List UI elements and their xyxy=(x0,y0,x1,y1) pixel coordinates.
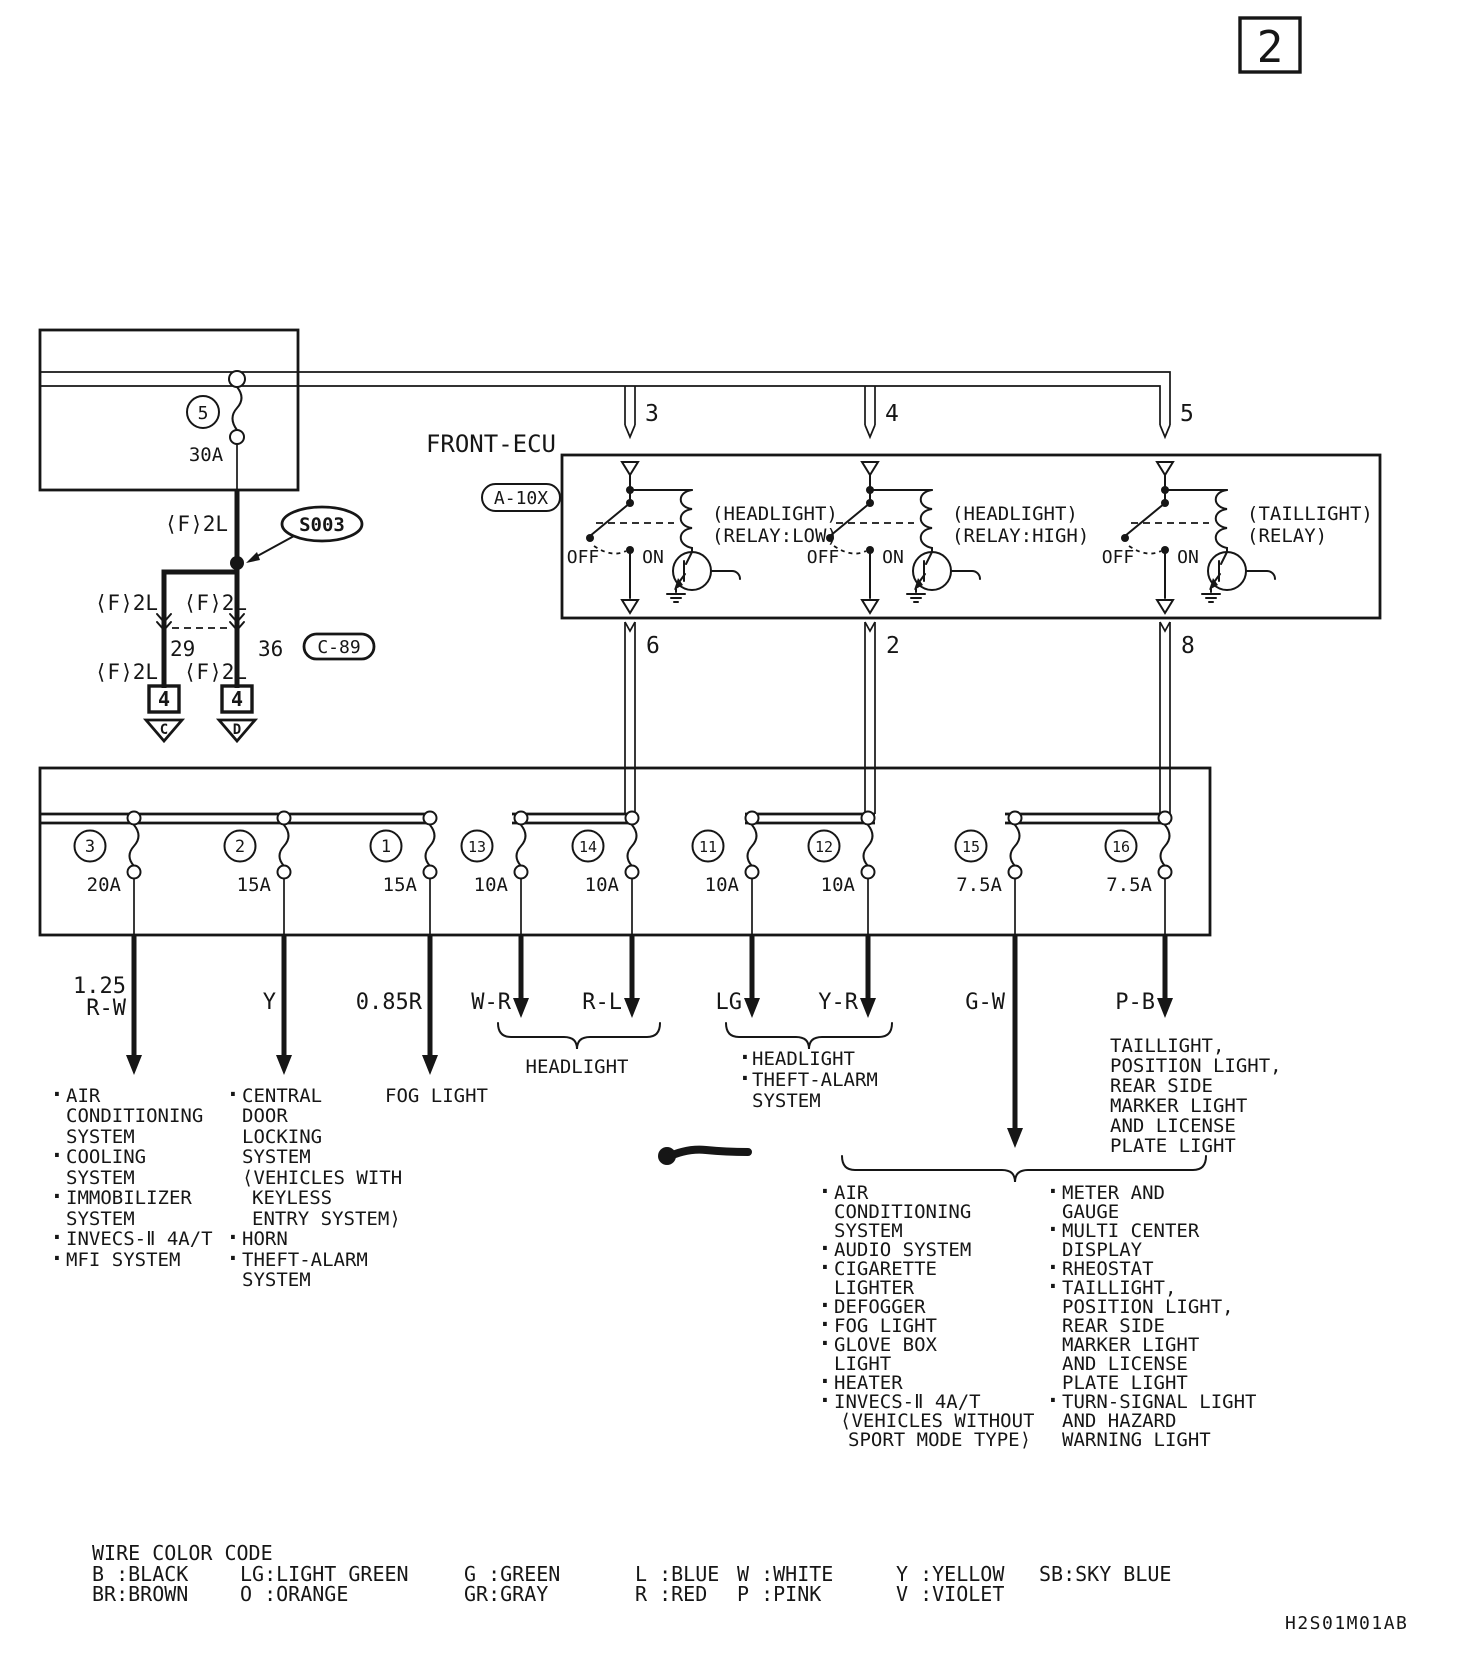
front-ecu: FRONT-ECU A-10X 3 4 5 OFF ON (HEADLIGHT)… xyxy=(426,401,1380,814)
relay-name-line1: (HEADLIGHT) xyxy=(712,503,838,525)
bullet: · xyxy=(50,1184,64,1210)
bullet: · xyxy=(818,1179,832,1205)
wire-code-rw: R-W xyxy=(86,996,126,1021)
dest-line: SYSTEM xyxy=(66,1126,135,1148)
relay-name-line2: (RELAY:HIGH) xyxy=(952,525,1089,547)
dest-line: MARKER LIGHT xyxy=(1110,1095,1247,1117)
fuse-14: 14 10A xyxy=(573,812,639,936)
dest-line: SYSTEM xyxy=(242,1269,311,1291)
bullet: · xyxy=(50,1143,64,1169)
dest-line: SYSTEM xyxy=(752,1090,821,1112)
dest-line: MFI SYSTEM xyxy=(66,1249,180,1271)
relay-headlight-high: OFF ON (HEADLIGHT) (RELAY:HIGH) xyxy=(807,503,1090,568)
ecu-pin-top-4: 4 xyxy=(885,401,899,427)
legend-item: R :RED xyxy=(635,1582,707,1606)
relay-name-line2: (RELAY) xyxy=(1247,525,1327,547)
bullet: · xyxy=(1046,1388,1060,1414)
bullet: · xyxy=(50,1246,64,1272)
relay-name-line1: (HEADLIGHT) xyxy=(952,503,1078,525)
dest-line: PLATE LIGHT xyxy=(1110,1135,1236,1157)
on-label: ON xyxy=(642,547,664,568)
dest-list-lg-yr: · HEADLIGHT · THEFT-ALARM SYSTEM xyxy=(738,1045,878,1112)
bullet: · xyxy=(818,1255,832,1281)
dest-headlight: HEADLIGHT xyxy=(526,1056,629,1078)
off-label: OFF xyxy=(807,547,840,568)
off-label: OFF xyxy=(1102,547,1135,568)
ecu-pin-bottom-8: 8 xyxy=(1181,633,1195,659)
feed-wires: ⟨F⟩2L S003 ⟨F⟩2L ⟨F⟩2L 29 36 C-89 ⟨F⟩2L … xyxy=(95,444,374,741)
fuse-12: 12 10A xyxy=(809,812,875,936)
fuse-1: 1 15A xyxy=(371,812,437,936)
bullet: · xyxy=(1046,1217,1060,1243)
legend-item: SB:SKY BLUE xyxy=(1039,1562,1171,1586)
dest-line: DOOR xyxy=(242,1105,288,1127)
terminal-right: 4 D xyxy=(219,686,255,741)
fuse-amp: 10A xyxy=(585,874,620,896)
dest-line: COOLING xyxy=(66,1146,146,1168)
wire-color-legend: WIRE COLOR CODE B :BLACK LG:LIGHT GREEN … xyxy=(92,1541,1171,1606)
terminal-number: 4 xyxy=(231,687,243,711)
dest-line: REAR SIDE xyxy=(1110,1075,1213,1097)
fuse-id: 15 xyxy=(962,838,980,856)
dest-line: AND LICENSE xyxy=(1110,1115,1236,1137)
splice-s003: S003 xyxy=(246,507,362,563)
fuse-11: 11 10A xyxy=(693,812,759,936)
dest-line: LOCKING xyxy=(242,1126,322,1148)
dest-line: SYSTEM xyxy=(66,1167,135,1189)
pin-number-right: 36 xyxy=(258,637,283,661)
dest-line: SPORT MODE TYPE⟩ xyxy=(848,1429,1031,1451)
wire-gauge-label: ⟨F⟩2L xyxy=(184,591,247,615)
relay-taillight: OFF ON (TAILLIGHT) (RELAY) xyxy=(1102,503,1373,568)
dest-line: ENTRY SYSTEM⟩ xyxy=(252,1208,401,1230)
fuse-id: 13 xyxy=(468,838,486,856)
dest-line: CONDITIONING xyxy=(66,1105,203,1127)
brace-headlight xyxy=(498,1023,660,1049)
fuse-amp: 15A xyxy=(237,874,272,896)
connector-c89-label: C-89 xyxy=(317,637,360,658)
ecu-title: FRONT-ECU xyxy=(426,430,556,458)
ecu-connector-label: A-10X xyxy=(494,488,548,509)
wire-gauge-label: ⟨F⟩2L xyxy=(95,660,158,684)
dest-line: POSITION LIGHT, xyxy=(1110,1055,1282,1077)
dest-line: TAILLIGHT, xyxy=(1110,1035,1224,1057)
dest-line: WARNING LIGHT xyxy=(1062,1429,1211,1451)
connector-c89: 29 36 C-89 xyxy=(157,614,374,661)
dest-fog-light: FOG LIGHT xyxy=(385,1085,488,1107)
wire-code-gw: G-W xyxy=(965,990,1005,1015)
dest-line: CENTRAL xyxy=(242,1085,322,1107)
connector-arrow-5 xyxy=(1160,425,1170,437)
ecu-pin-top-5: 5 xyxy=(1180,401,1194,427)
dest-line: ⟨VEHICLES WITH xyxy=(242,1167,402,1189)
bullet: · xyxy=(50,1082,64,1108)
fuse-id: 14 xyxy=(579,838,597,856)
ecu-pin-top-3: 3 xyxy=(645,401,659,427)
legend-item: P :PINK xyxy=(737,1582,821,1606)
bullet: · xyxy=(226,1246,240,1272)
dest-line: INVECS-Ⅱ 4A/T xyxy=(66,1228,213,1250)
power-feed-box xyxy=(40,330,298,490)
dest-list-pb: TAILLIGHT, POSITION LIGHT, REAR SIDE MAR… xyxy=(1110,1035,1282,1157)
relay-headlight-low: OFF ON (HEADLIGHT) (RELAY:LOW) xyxy=(567,503,838,568)
connector-arrow-4 xyxy=(865,425,875,437)
wire-code-lg: LG xyxy=(716,990,743,1015)
bullet: · xyxy=(1046,1274,1060,1300)
bullet: · xyxy=(226,1082,240,1108)
fuse-16: 16 7.5A xyxy=(1106,812,1172,936)
dest-line: SYSTEM xyxy=(242,1146,311,1168)
wire-code-085r: 0.85R xyxy=(356,990,423,1015)
wire-code-pb: P-B xyxy=(1115,990,1155,1015)
relay-name-line1: (TAILLIGHT) xyxy=(1247,503,1373,525)
goto-letter-D: D xyxy=(233,722,241,738)
dest-line: THEFT-ALARM xyxy=(752,1069,878,1091)
dest-list-rw: · AIR CONDITIONING SYSTEM · COOLING SYST… xyxy=(50,1082,213,1272)
connector-arrow-3 xyxy=(625,425,635,437)
wire-gauge-label: ⟨F⟩2L xyxy=(184,660,247,684)
legend-item: V :VIOLET xyxy=(896,1582,1004,1606)
wire-code-y: Y xyxy=(263,990,276,1015)
dest-line: HEADLIGHT xyxy=(752,1048,855,1070)
doc-code: H2S01M01AB xyxy=(1285,1613,1408,1634)
braces xyxy=(498,1023,1206,1182)
legend-item: GR:GRAY xyxy=(464,1582,548,1606)
fuse-amp: 7.5A xyxy=(956,874,1002,896)
fuse-id: 12 xyxy=(815,838,833,856)
bullet: · xyxy=(818,1331,832,1357)
on-label: ON xyxy=(882,547,904,568)
dest-line: SYSTEM xyxy=(66,1208,135,1230)
fuse-id: 1 xyxy=(381,837,391,857)
legend-item: O :ORANGE xyxy=(240,1582,348,1606)
dest-list-gw-right: · METER AND GAUGE · MULTI CENTER DISPLAY… xyxy=(1046,1179,1256,1451)
dest-list-gw-left: · AIR CONDITIONING SYSTEM · AUDIO SYSTEM… xyxy=(818,1179,1034,1451)
bullet: · xyxy=(818,1388,832,1414)
dest-line: AIR xyxy=(66,1085,101,1107)
dest-line: IMMOBILIZER xyxy=(66,1187,192,1209)
wire-code-wr: W-R xyxy=(471,990,511,1015)
on-label: ON xyxy=(1177,547,1199,568)
fuse-id: 11 xyxy=(699,838,717,856)
fuse-5-id: 5 xyxy=(198,403,209,424)
ecu-exit-wires: 6 2 8 xyxy=(625,622,1195,814)
fuse-id: 3 xyxy=(85,837,95,857)
wire-code-rl: R-L xyxy=(582,990,622,1015)
ecu-pin-bottom-6: 6 xyxy=(646,633,660,659)
fuse-amp: 7.5A xyxy=(1106,874,1152,896)
terminal-left: 4 C xyxy=(146,686,182,741)
fuse-13: 13 10A xyxy=(462,812,528,936)
legend-item: BR:BROWN xyxy=(92,1582,188,1606)
goto-letter-C: C xyxy=(160,722,168,738)
junction-fuses: 3 20A 2 15A 1 15A xyxy=(75,812,1172,936)
wire-code-yr: Y-R xyxy=(818,990,858,1015)
wiring-diagram-page: 2 5 30A ⟨F⟩2L S003 xyxy=(0,0,1472,1664)
fuse-5-amp: 30A xyxy=(189,444,224,466)
fuse-amp: 15A xyxy=(383,874,418,896)
fuse-2: 2 15A xyxy=(225,812,291,936)
page-number: 2 xyxy=(1257,22,1284,73)
off-label: OFF xyxy=(567,547,600,568)
ecu-pin-bottom-2: 2 xyxy=(886,633,900,659)
dest-list-y: · CENTRAL DOOR LOCKING SYSTEM ⟨VEHICLES … xyxy=(226,1082,402,1291)
fuse-id: 16 xyxy=(1112,838,1130,856)
fuse-amp: 10A xyxy=(474,874,509,896)
brace-gw-loads xyxy=(842,1156,1206,1182)
wire-gauge-label: ⟨F⟩2L xyxy=(165,512,228,536)
pin-number-left: 29 xyxy=(170,637,195,661)
dest-line: KEYLESS xyxy=(252,1187,332,1209)
dest-line: THEFT-ALARM xyxy=(242,1249,368,1271)
fuse-amp: 10A xyxy=(821,874,856,896)
fuse-15: 15 7.5A xyxy=(956,812,1022,936)
wire-color-labels: 1.25 R-W Y 0.85R W-R R-L LG Y-R G-W P-B xyxy=(73,974,1155,1021)
dest-line: HORN xyxy=(242,1228,288,1250)
bullet: · xyxy=(738,1066,752,1092)
wire-gauge-label: ⟨F⟩2L xyxy=(95,591,158,615)
fuse-id: 2 xyxy=(235,837,245,857)
fuse-amp: 20A xyxy=(87,874,122,896)
relay-name-line2: (RELAY:LOW) xyxy=(712,525,838,547)
bullet: · xyxy=(1046,1179,1060,1205)
fuse-amp: 10A xyxy=(705,874,740,896)
ink-mark xyxy=(658,1147,748,1165)
page-number-box: 2 xyxy=(1240,18,1300,73)
fuse-3: 3 20A xyxy=(75,812,141,936)
splice-label: S003 xyxy=(299,514,345,536)
terminal-number: 4 xyxy=(158,687,170,711)
